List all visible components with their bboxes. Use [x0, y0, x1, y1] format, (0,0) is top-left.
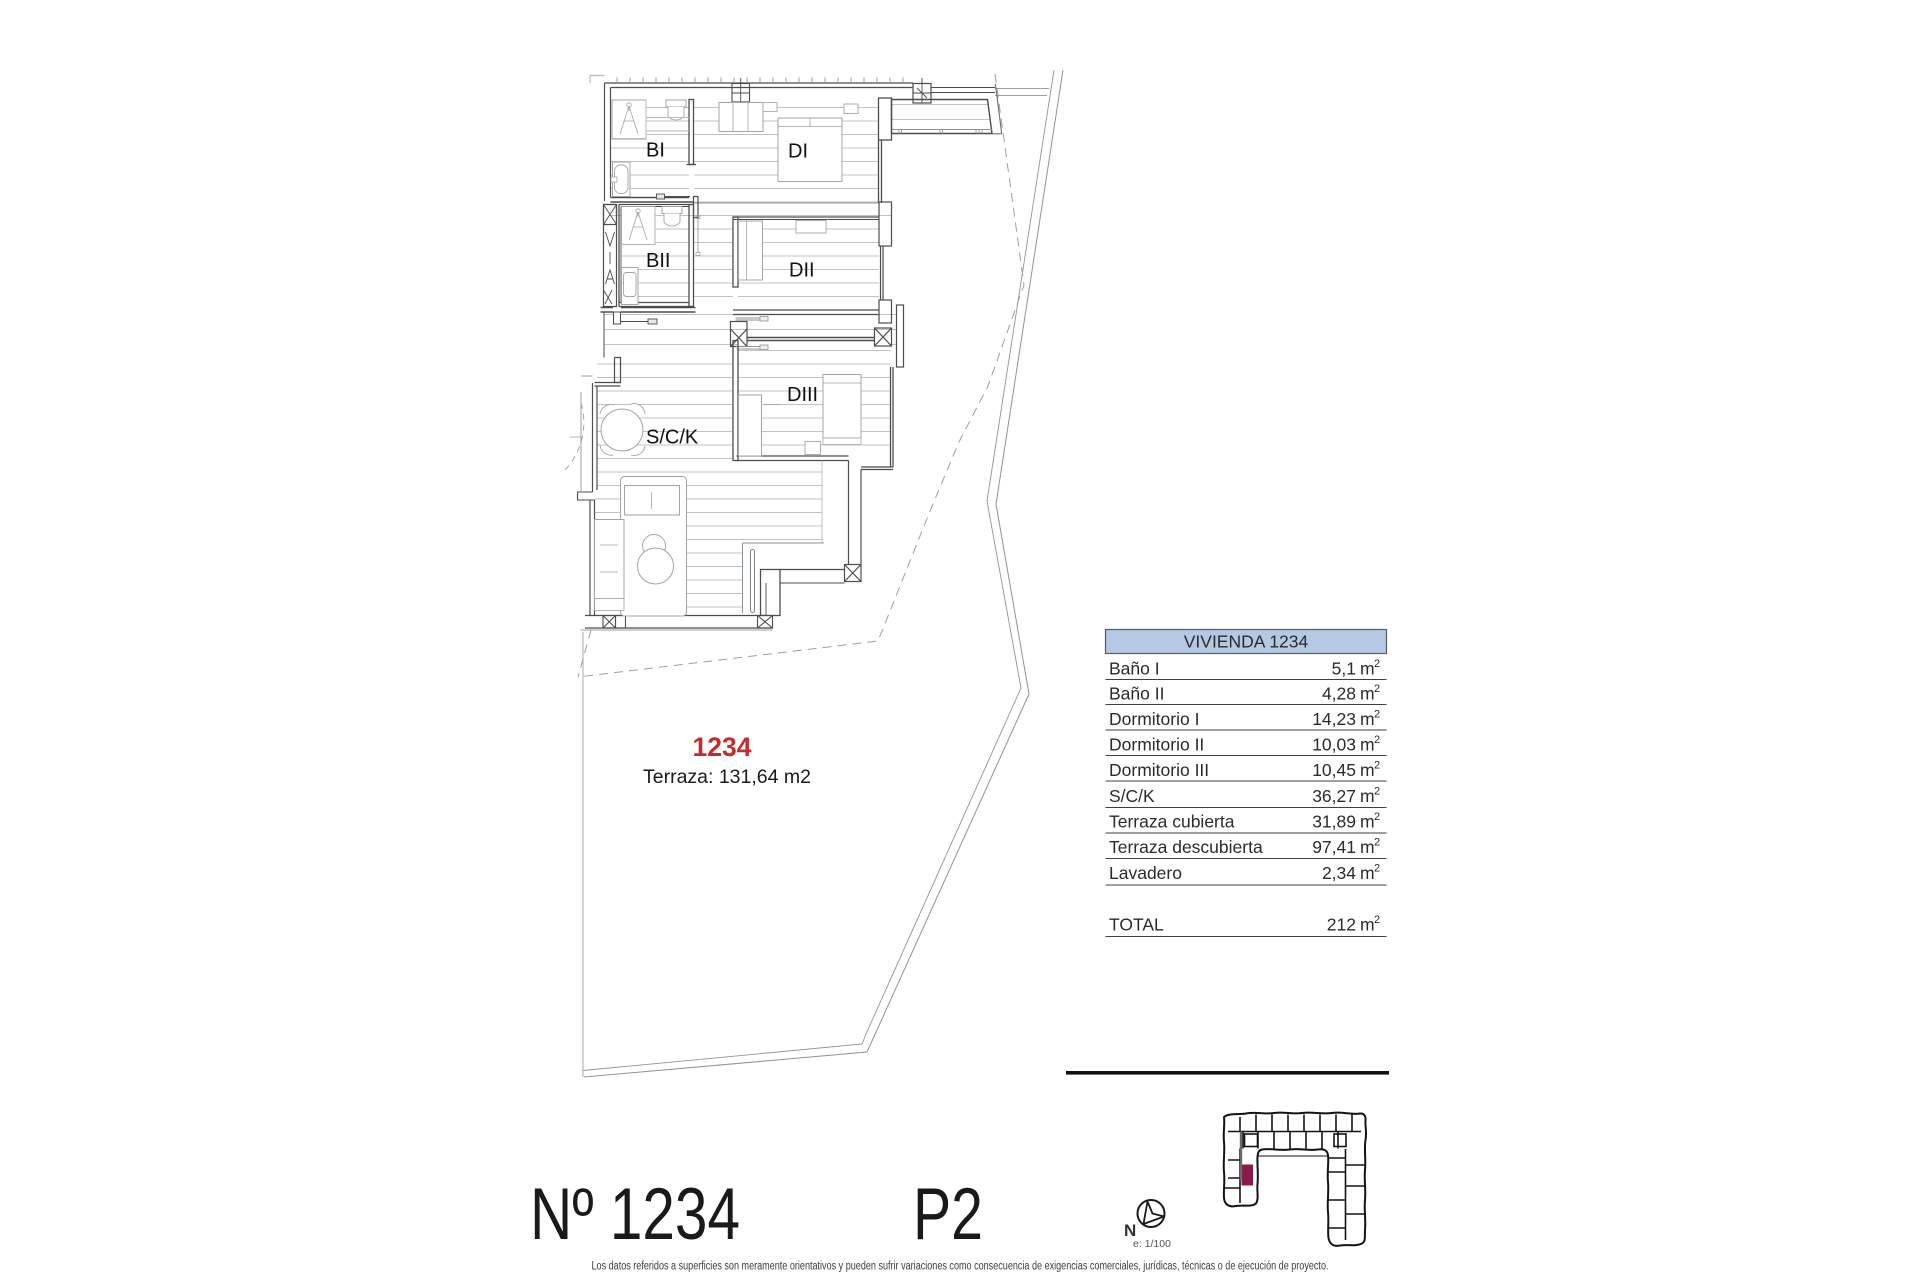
svg-text:2: 2 [1374, 658, 1380, 670]
svg-text:2: 2 [1374, 709, 1380, 721]
svg-text:m: m [1360, 659, 1375, 679]
svg-text:2: 2 [1374, 914, 1380, 926]
svg-text:Lavadero: Lavadero [1109, 863, 1182, 883]
svg-text:2: 2 [1374, 786, 1380, 798]
svg-text:BII: BII [646, 250, 670, 272]
svg-text:2,34: 2,34 [1322, 863, 1356, 883]
svg-text:Baño II: Baño II [1109, 684, 1164, 704]
svg-text:DI: DI [788, 141, 808, 163]
svg-text:Dormitorio II: Dormitorio II [1109, 735, 1204, 755]
svg-text:31,89: 31,89 [1312, 812, 1356, 832]
svg-text:36,27: 36,27 [1312, 786, 1356, 806]
svg-text:2: 2 [1374, 811, 1380, 823]
svg-text:Los datos referidos a superfic: Los datos referidos a superficies son me… [592, 1261, 1329, 1273]
svg-text:212: 212 [1327, 915, 1356, 935]
svg-text:Baño I: Baño I [1109, 659, 1160, 679]
svg-text:BI: BI [646, 140, 665, 162]
svg-text:1234: 1234 [693, 732, 752, 762]
svg-text:2: 2 [1374, 760, 1380, 772]
svg-text:DII: DII [789, 260, 815, 282]
svg-text:VIVIENDA 1234: VIVIENDA 1234 [1184, 632, 1309, 652]
svg-text:e: 1/100: e: 1/100 [1133, 1238, 1171, 1250]
svg-text:Nº 1234: Nº 1234 [530, 1174, 740, 1255]
svg-text:m: m [1360, 709, 1375, 729]
svg-text:2: 2 [1374, 863, 1380, 875]
svg-text:m: m [1360, 786, 1375, 806]
svg-text:5,1: 5,1 [1332, 659, 1356, 679]
svg-text:4,28: 4,28 [1322, 684, 1356, 704]
svg-text:Dormitorio I: Dormitorio I [1109, 709, 1199, 729]
svg-text:Dormitorio III: Dormitorio III [1109, 760, 1209, 780]
svg-text:m: m [1360, 735, 1375, 755]
svg-text:TOTAL: TOTAL [1109, 915, 1164, 935]
svg-text:DIII: DIII [787, 384, 818, 406]
svg-text:m: m [1360, 812, 1375, 832]
svg-text:S/C/K: S/C/K [1109, 786, 1155, 806]
svg-text:m: m [1360, 684, 1375, 704]
svg-text:10,03: 10,03 [1312, 735, 1356, 755]
svg-text:Terraza: 131,64 m2: Terraza: 131,64 m2 [643, 766, 811, 788]
svg-text:97,41: 97,41 [1312, 837, 1356, 857]
svg-text:m: m [1360, 915, 1375, 935]
svg-text:S/C/K: S/C/K [646, 427, 699, 449]
svg-text:m: m [1360, 837, 1375, 857]
svg-text:P2: P2 [913, 1174, 983, 1255]
svg-text:14,23: 14,23 [1312, 709, 1356, 729]
svg-text:2: 2 [1374, 734, 1380, 746]
svg-text:m: m [1360, 863, 1375, 883]
svg-text:2: 2 [1374, 837, 1380, 849]
svg-text:10,45: 10,45 [1312, 760, 1356, 780]
svg-text:2: 2 [1374, 683, 1380, 695]
svg-text:m: m [1360, 760, 1375, 780]
svg-text:Terraza descubierta: Terraza descubierta [1109, 837, 1263, 857]
svg-text:Terraza cubierta: Terraza cubierta [1109, 812, 1235, 832]
